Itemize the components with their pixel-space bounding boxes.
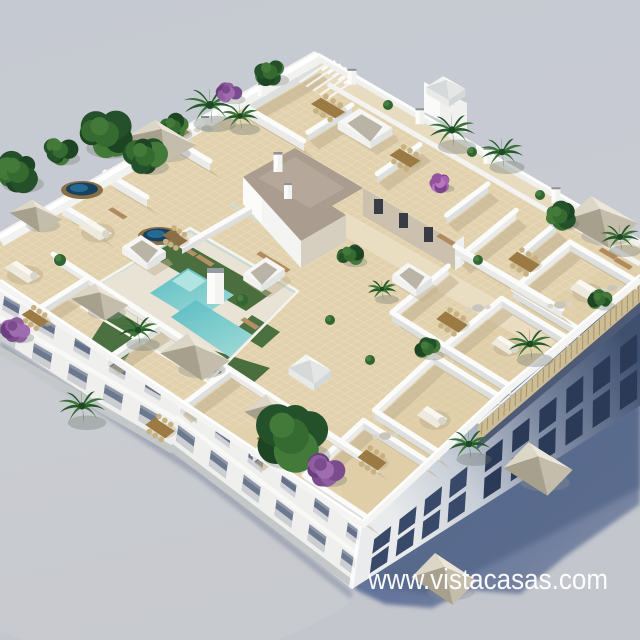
svg-text:www.vistacasas.com: www.vistacasas.com	[367, 564, 608, 596]
